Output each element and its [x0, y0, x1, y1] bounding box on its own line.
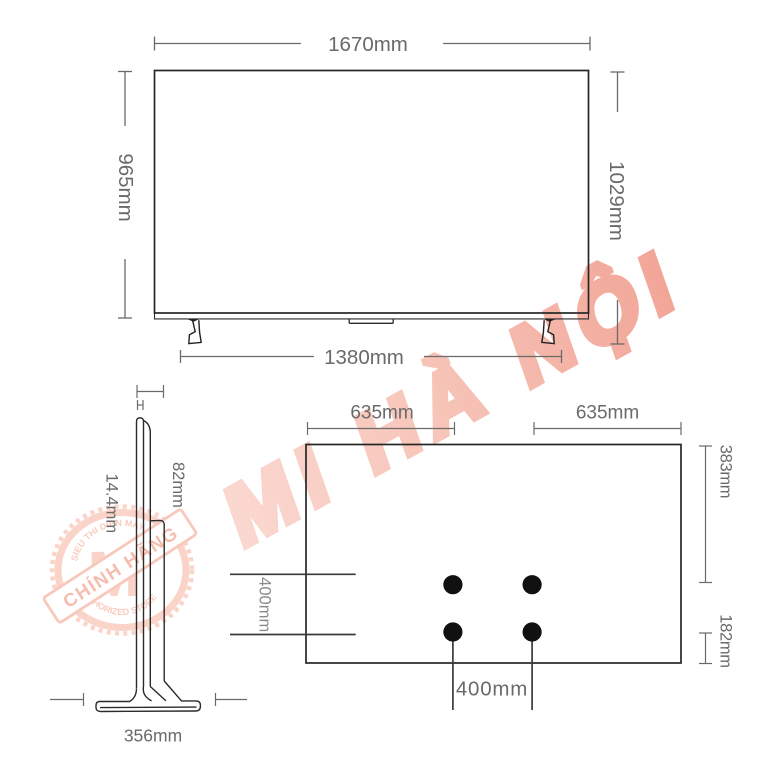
- svg-text:400mm: 400mm: [456, 678, 528, 701]
- svg-text:383mm: 383mm: [717, 445, 735, 499]
- svg-text:965mm: 965mm: [114, 153, 137, 221]
- svg-text:14.4mm: 14.4mm: [103, 473, 121, 533]
- svg-text:635mm: 635mm: [350, 403, 413, 424]
- svg-text:356mm: 356mm: [124, 726, 182, 746]
- svg-text:1029mm: 1029mm: [605, 161, 628, 241]
- svg-text:182mm: 182mm: [717, 614, 735, 668]
- svg-text:1670mm: 1670mm: [328, 33, 408, 56]
- svg-text:82mm: 82mm: [169, 462, 187, 508]
- svg-text:635mm: 635mm: [576, 403, 639, 424]
- svg-text:400mm: 400mm: [256, 577, 274, 632]
- svg-text:1380mm: 1380mm: [324, 346, 404, 369]
